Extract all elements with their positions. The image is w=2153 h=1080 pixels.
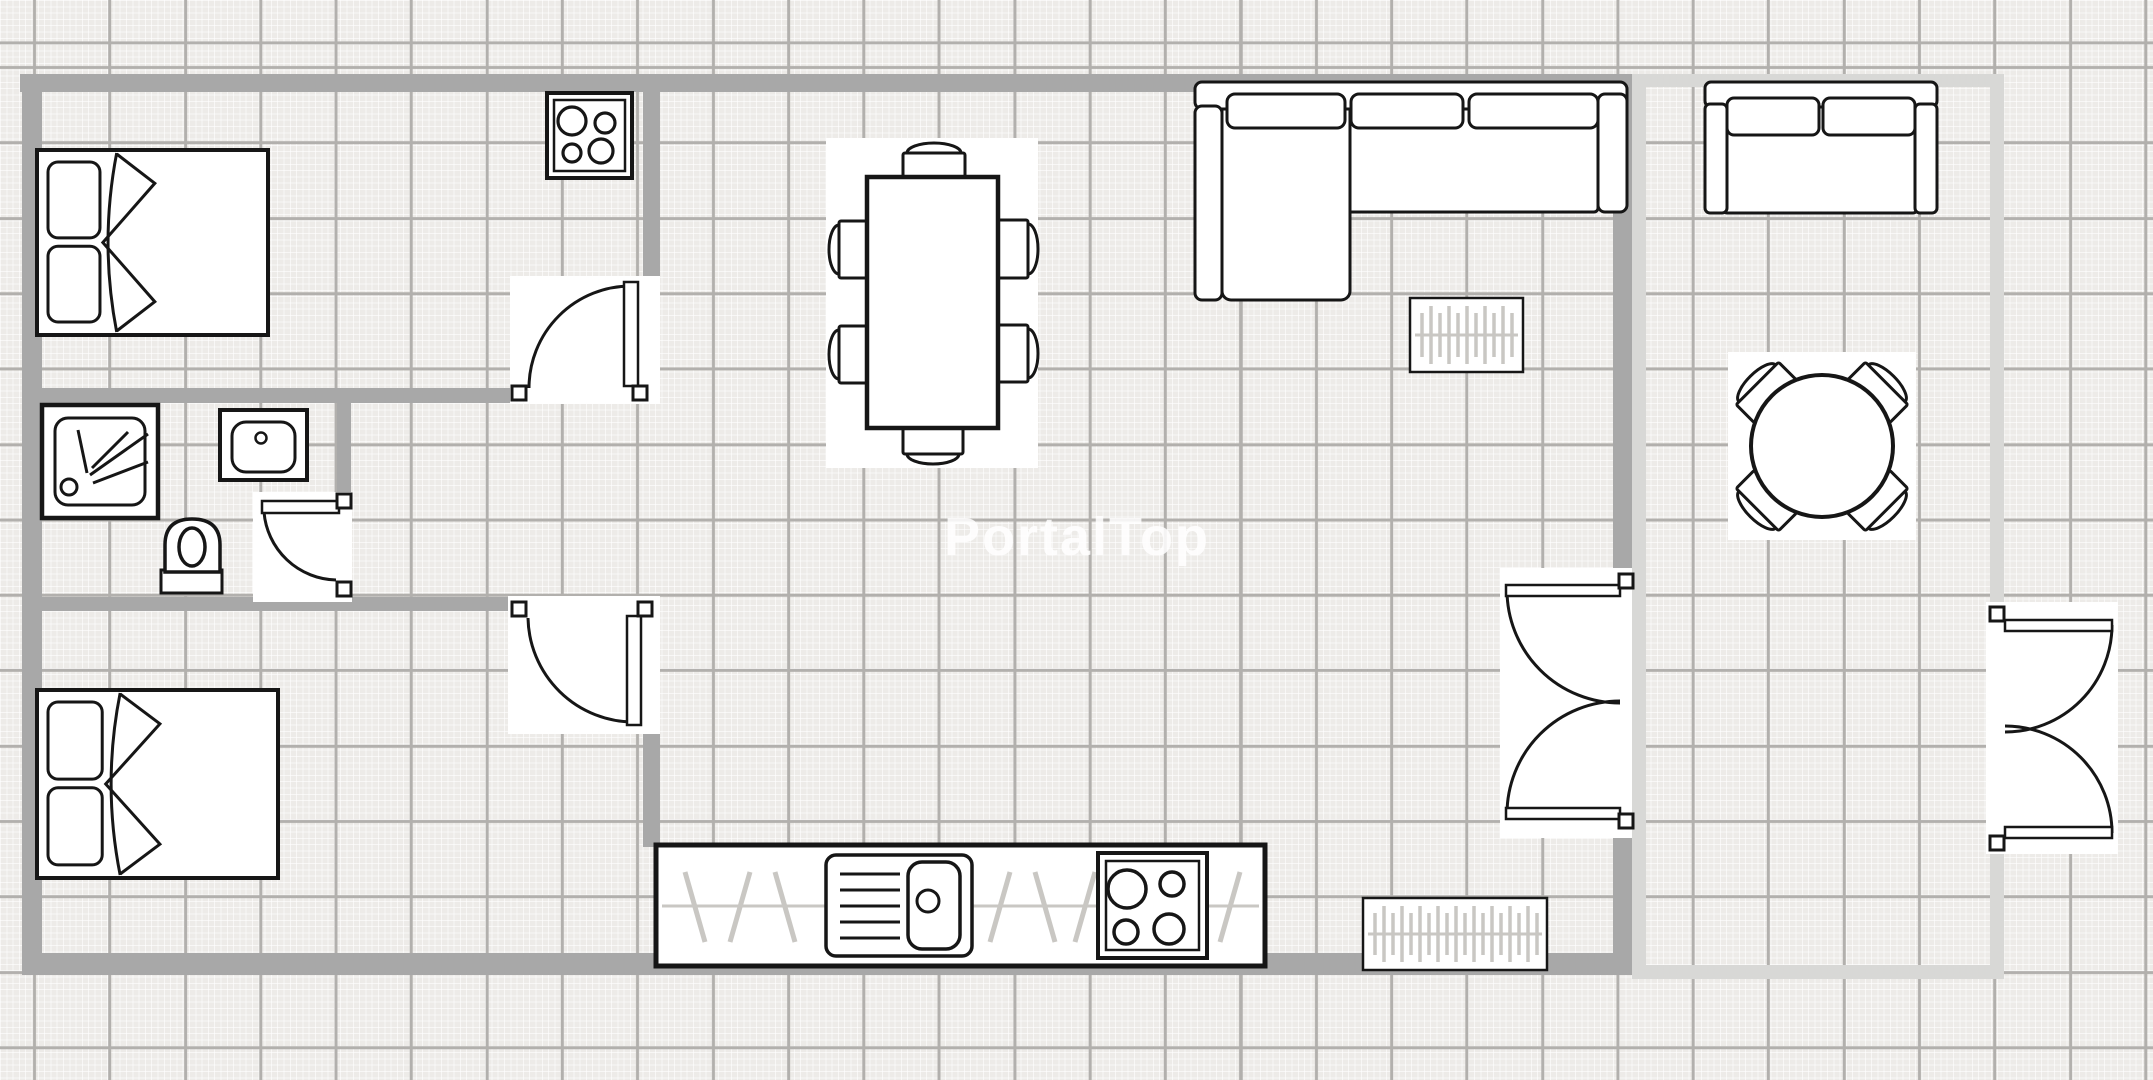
wall-terrace-east-lower — [1990, 852, 2004, 965]
wall-bathroom-east — [337, 395, 351, 498]
kitchen-counter — [656, 845, 1265, 966]
shower-tray — [42, 405, 158, 518]
watermark-text: PortalTop — [944, 507, 1210, 567]
radiator-kitchen — [1363, 898, 1547, 970]
corner-sofa — [1195, 82, 1627, 300]
dining-table-six-chairs — [826, 138, 1038, 468]
stove-hob-top — [547, 93, 632, 178]
wall-terrace-bottom — [1632, 965, 2004, 979]
wall-terrace-west — [1632, 87, 1646, 965]
floorplan-svg: PortalTop — [0, 0, 2153, 1080]
toilet — [161, 519, 222, 593]
door-living-terrace — [1500, 568, 1633, 838]
radiator-living — [1410, 298, 1523, 372]
bed-double-bedroom1 — [37, 150, 268, 335]
door-bedroom1 — [510, 276, 660, 404]
bed-double-bedroom2 — [37, 690, 278, 878]
wall-bedroom1-south — [42, 388, 515, 403]
wall-terrace-east-upper — [1990, 87, 2004, 608]
door-bathroom — [253, 492, 352, 602]
door-terrace-exterior — [1986, 602, 2118, 854]
bathroom-sink — [220, 410, 307, 480]
terrace-loveseat — [1705, 82, 1937, 213]
floorplan-canvas: PortalTop — [0, 0, 2153, 1080]
terrace-round-table — [1728, 352, 1916, 540]
door-bedroom2 — [508, 596, 660, 734]
wall-living-divider-lower — [1613, 830, 1632, 975]
